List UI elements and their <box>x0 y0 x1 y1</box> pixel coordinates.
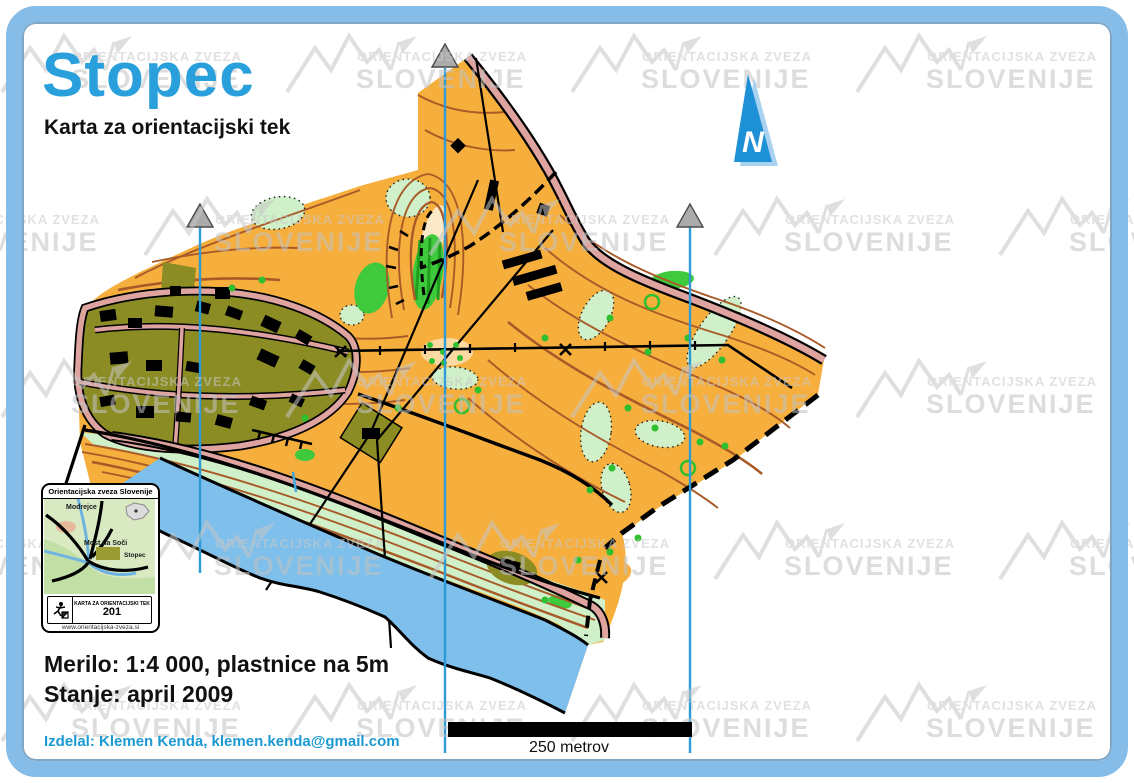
inset-location-card: Orientacijska zveza Slovenije Modrejce M… <box>41 483 160 633</box>
inset-map: Modrejce Most na Soči Stopec <box>44 499 155 594</box>
map-sheet: { "page": { "title": "Stopec", "subtitle… <box>0 0 1134 783</box>
inset-header: Orientacijska zveza Slovenije <box>43 487 158 499</box>
village <box>78 291 357 449</box>
orienteering-runner-icon <box>48 597 73 623</box>
inset-footer: KARTA ZA ORIENTACIJSKI TEK 201 <box>47 596 152 624</box>
inset-map-number: 201 <box>73 607 151 618</box>
inset-label-most-na-soci: Most na Soči <box>84 540 127 547</box>
inset-label-stopec: Stopec <box>124 552 146 559</box>
orienteering-map-canvas <box>0 0 1134 783</box>
inset-website: www.orientacijska-zveza.si <box>43 624 158 631</box>
inset-label-modrejce: Modrejce <box>66 504 97 511</box>
